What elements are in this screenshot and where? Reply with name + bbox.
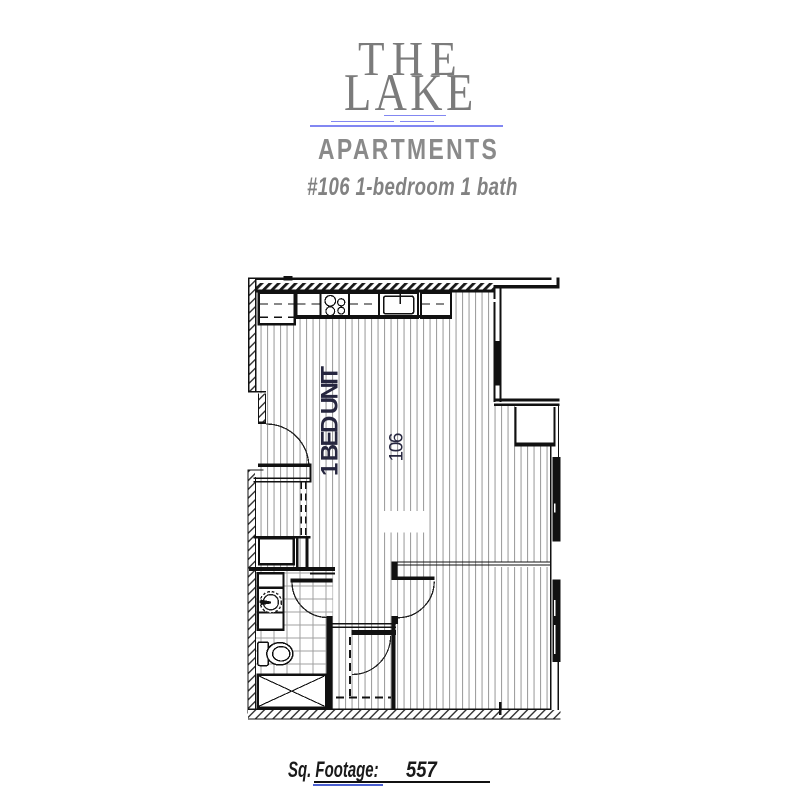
svg-text:1 BED UNIT: 1 BED UNIT (317, 366, 344, 476)
svg-text:106: 106 (387, 433, 408, 462)
